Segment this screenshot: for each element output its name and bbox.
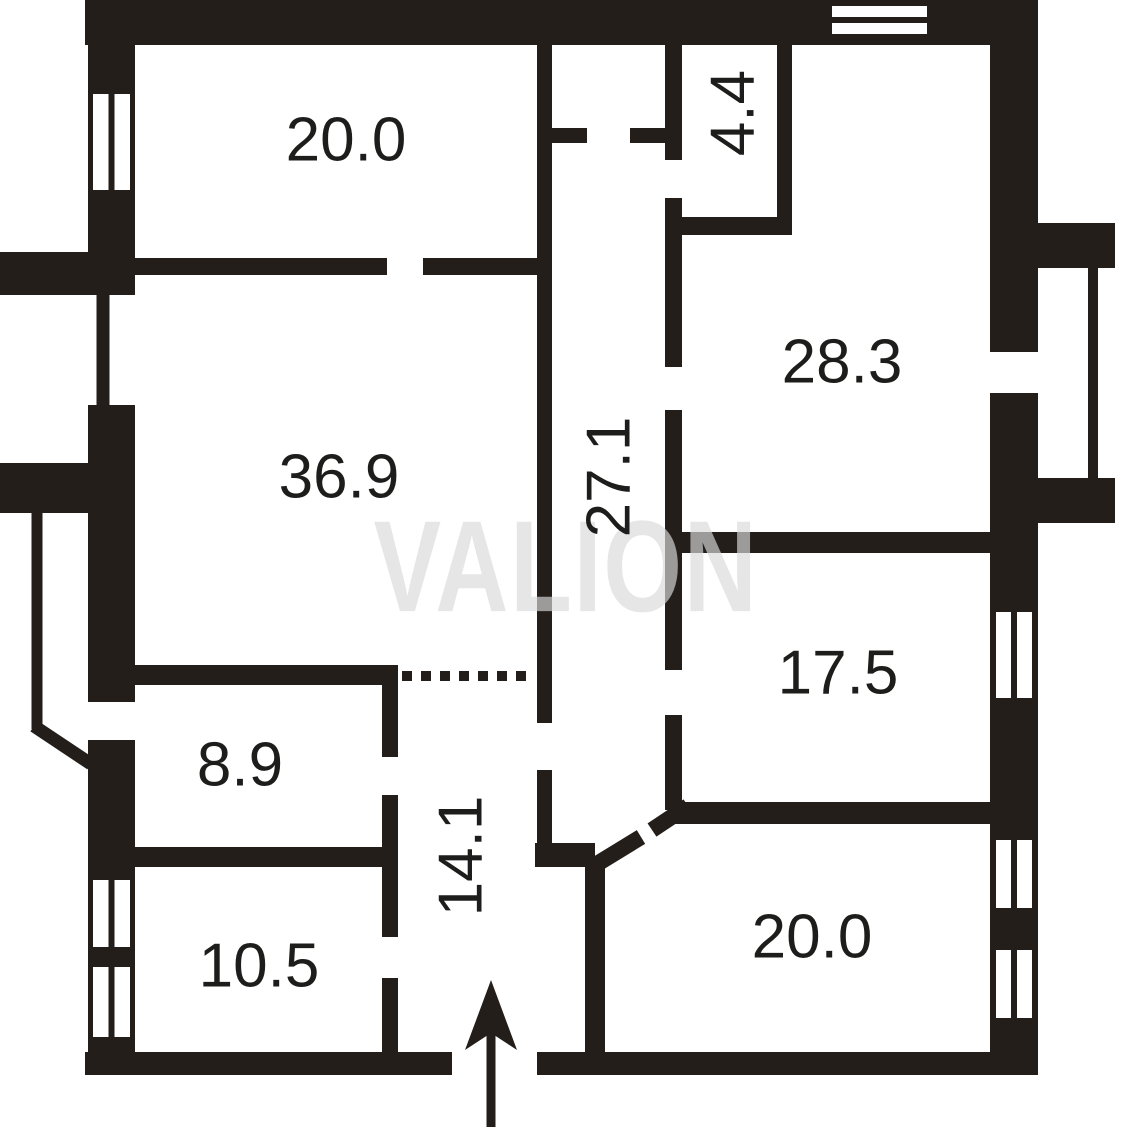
wall-369-south (135, 665, 397, 685)
wall-hall-west-lower (537, 770, 552, 845)
wall-closet-east (777, 45, 792, 235)
room-area-label-room-main-left: 36.9 (279, 443, 400, 512)
floor-plan: VALION20.04.428.336.927.117.58.914.110.5… (0, 0, 1121, 1127)
room-area-label-room-top-right: 28.3 (782, 328, 903, 397)
left-terrace-diagonal (34, 726, 91, 764)
wall-corr14-west-a (382, 665, 398, 757)
room-area-label-room-bottom-right: 20.0 (752, 903, 873, 972)
outer-wall-bottom-left (85, 1052, 452, 1075)
outer-wall-right-upper (990, 45, 1038, 352)
door-chamfer-leaf (592, 837, 641, 867)
left-pilaster-upper (0, 252, 135, 295)
wall-divider-89-105 (135, 847, 382, 867)
door-chamfer-jamb (652, 806, 688, 830)
room-area-label-room-bottom-left: 10.5 (199, 932, 320, 1001)
room-area-label-corridor-entry: 14.1 (427, 796, 496, 917)
wall-closet-south (665, 217, 792, 235)
room-area-label-room-top-left: 20.0 (286, 106, 407, 175)
wall-vestibule-stub-east (630, 128, 667, 143)
floor-plan-canvas: VALION20.04.428.336.927.117.58.914.110.5… (0, 0, 1121, 1127)
wall-vestibule-stub-west (552, 128, 587, 143)
room-area-label-room-closet: 4.4 (699, 70, 768, 156)
wall-room20br-west (585, 863, 605, 1052)
left-pilaster-lower (0, 463, 88, 513)
outer-wall-left-middle (88, 405, 135, 702)
outer-wall-bottom-right (537, 1052, 1038, 1075)
watermark-text: VALION (374, 493, 759, 639)
wall-175-south (670, 802, 990, 824)
room-area-label-room-small-left: 8.9 (197, 731, 283, 800)
room-area-label-hall-central: 27.1 (575, 417, 644, 538)
wall-hall-east-a (665, 45, 682, 160)
wall-hall-east-d (665, 715, 682, 810)
wall-corr14-west-c (382, 978, 398, 1052)
wall-room20tl-bottom-east (423, 258, 537, 275)
wall-corr14-west-b (382, 795, 398, 937)
balcony-wall-top (1038, 223, 1115, 268)
wall-room20tl-bottom-west (135, 258, 387, 275)
balcony-wall-bottom (1038, 478, 1115, 523)
room-area-label-room-mid-right: 17.5 (778, 639, 899, 708)
